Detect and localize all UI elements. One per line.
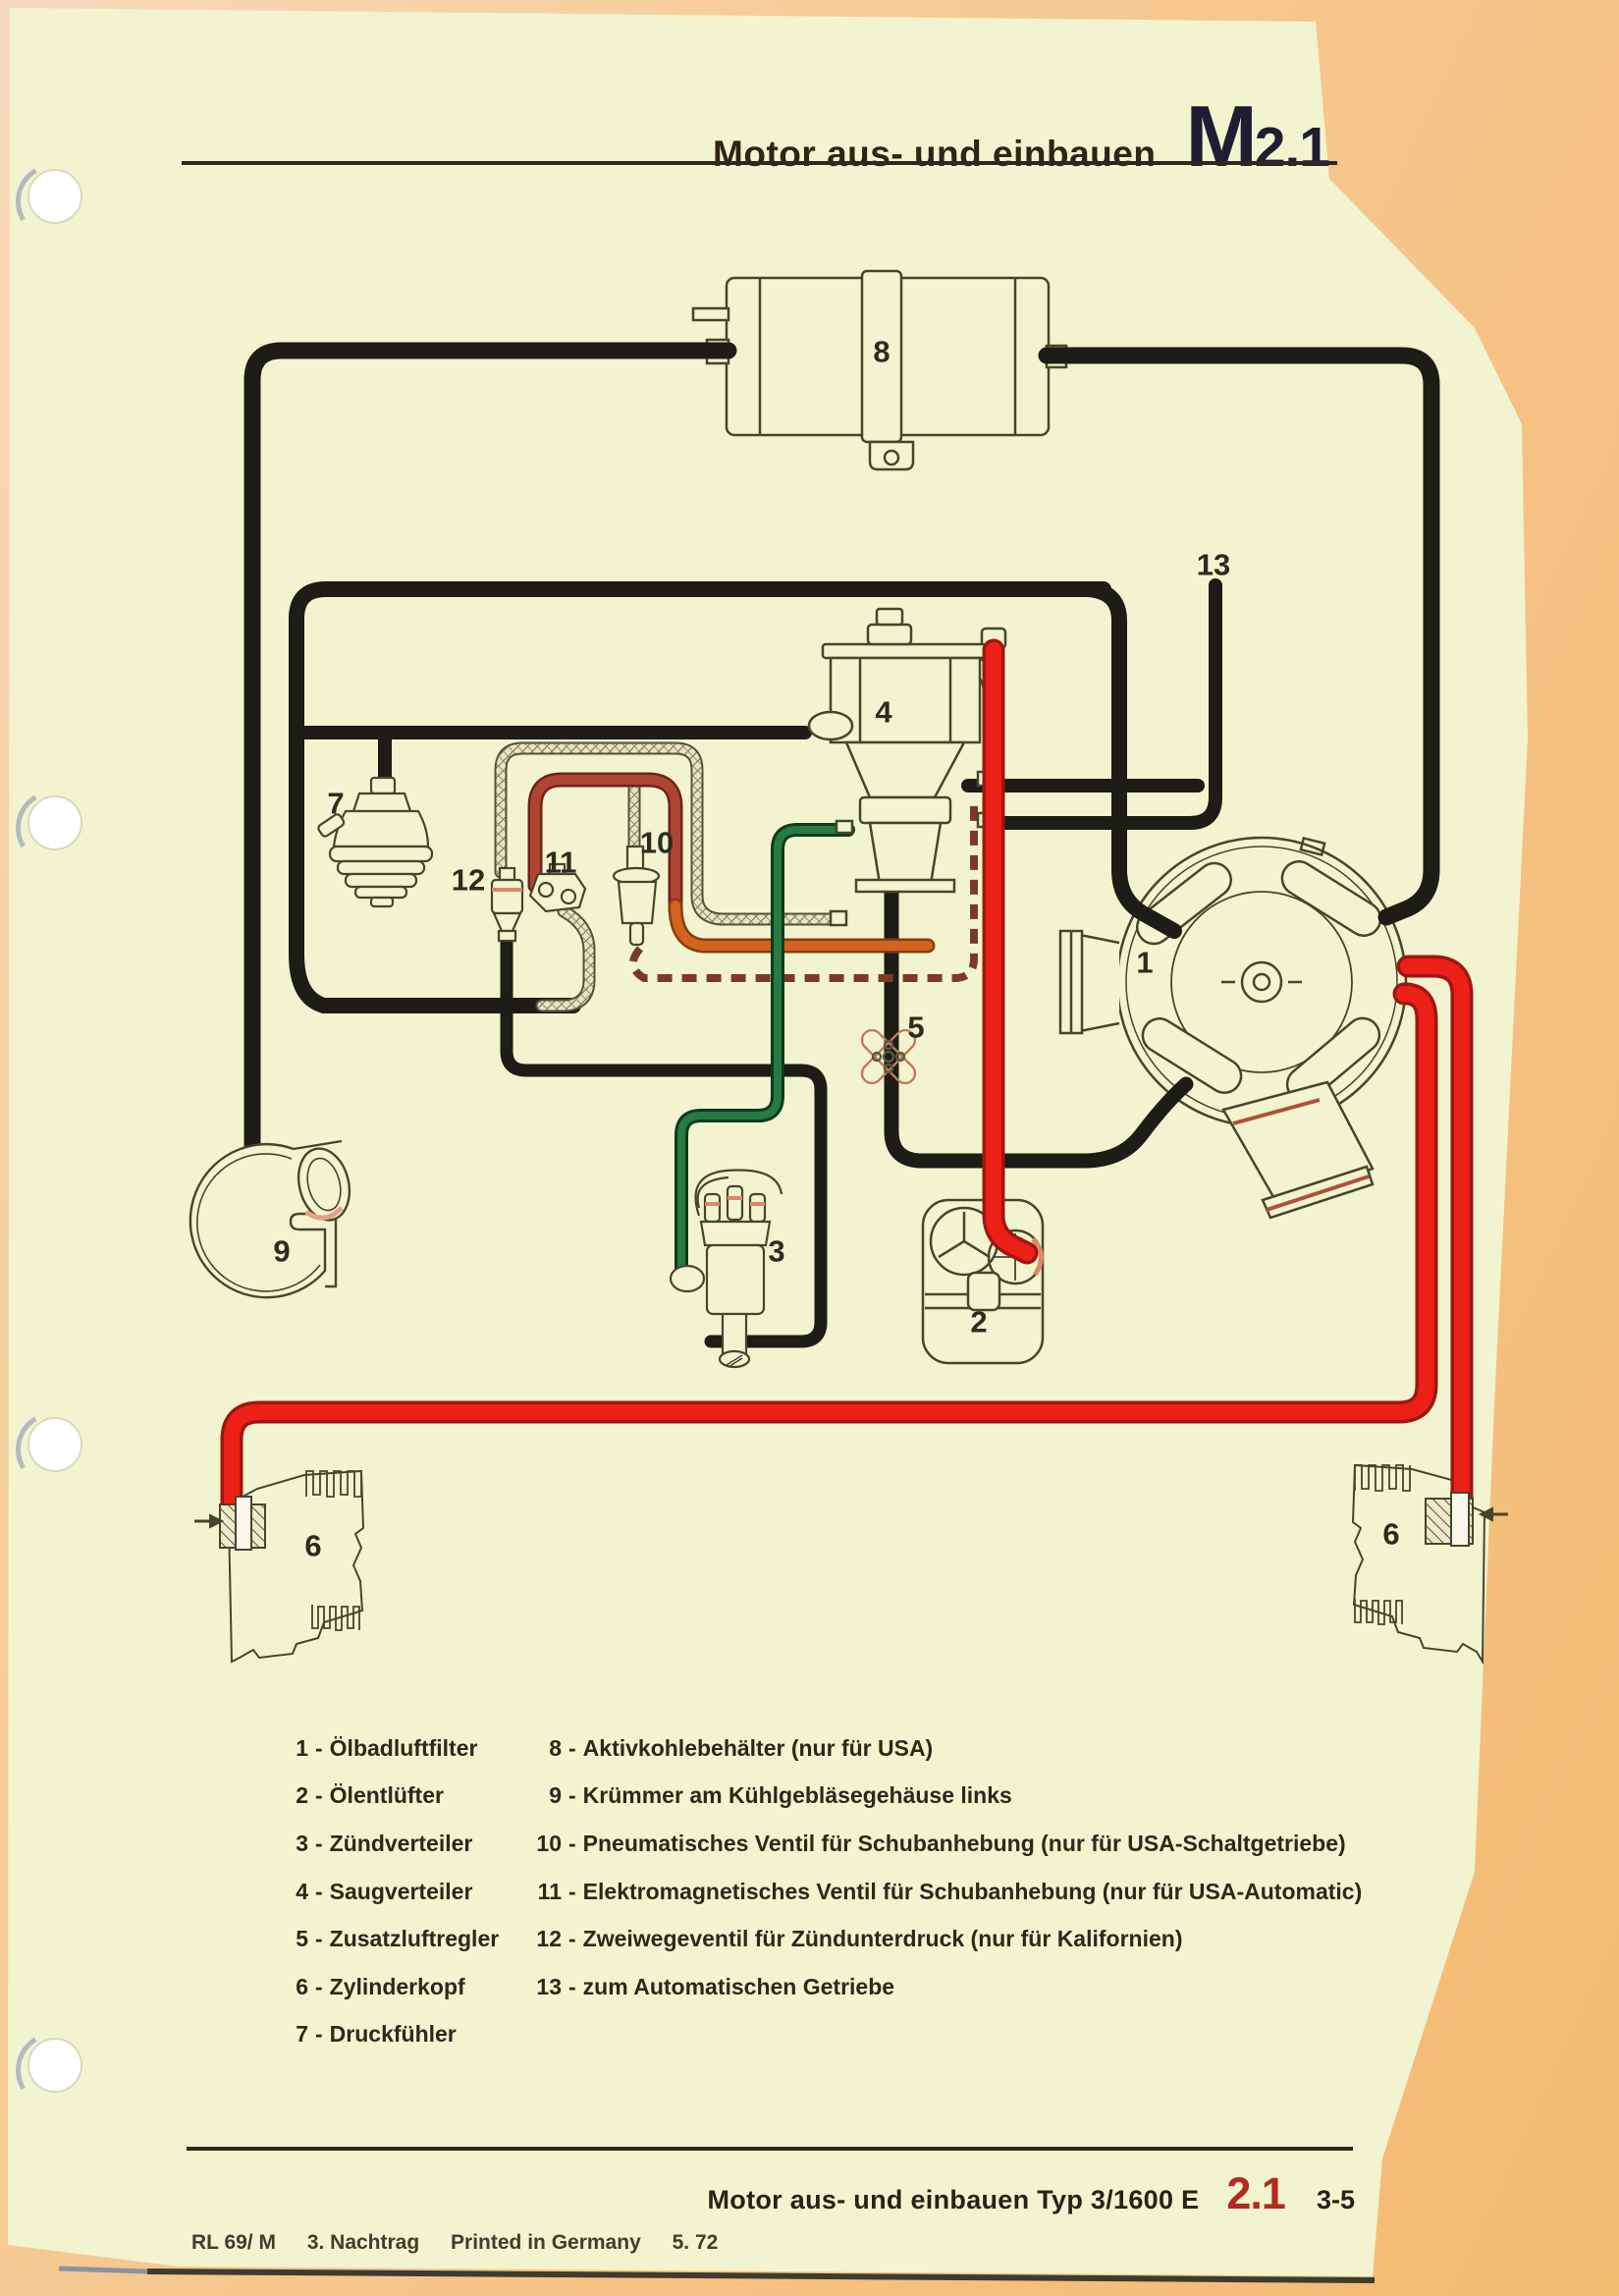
imprint-printed: Printed in Germany	[451, 2231, 641, 2254]
legend-number: 8	[534, 1735, 562, 1762]
footer-page-number: 3-5	[1317, 2185, 1355, 2215]
legend-label: zum Automatischen Getriebe	[583, 1974, 894, 2000]
diagram-callout-12: 12	[452, 865, 485, 896]
legend-row: 11 - Elektromagnetisches Ventil für Schu…	[534, 1868, 1362, 1916]
legend-dash: -	[568, 1735, 576, 1762]
legend-label: Zylinderkopf	[330, 1974, 465, 2000]
diagram-callout-1: 1	[1136, 948, 1153, 978]
imprint-date: 5. 72	[673, 2231, 719, 2254]
diagram-callout-10: 10	[640, 828, 674, 858]
footer-section-number: 2.1	[1226, 2168, 1285, 2219]
charcoal-canister-art	[693, 271, 1066, 469]
legend-dash: -	[568, 1831, 576, 1857]
page-footer: Motor aus- und einbauen Typ 3/1600 E 2.1…	[884, 2168, 1355, 2219]
legend-label: Elektromagnetisches Ventil für Schubanhe…	[583, 1879, 1363, 1905]
diagram-callout-3: 3	[768, 1236, 784, 1267]
legend-label: Aktivkohlebehälter (nur für USA)	[583, 1735, 934, 1762]
header-rule	[182, 161, 1337, 165]
legend-dash: -	[315, 1879, 323, 1905]
legend-dash: -	[315, 1926, 323, 1952]
legend-number: 7	[295, 2021, 308, 2048]
legend-dash: -	[315, 1831, 323, 1857]
diagram-callout-5: 5	[907, 1012, 924, 1043]
diagram-callout-8: 8	[873, 337, 890, 367]
diagram-callout-11: 11	[545, 847, 577, 878]
legend-row: 9 - Krümmer am Kühlgebläsegehäuse links	[534, 1773, 1362, 1821]
imprint-line: RL 69/ M 3. Nachtrag Printed in Germany …	[191, 2231, 743, 2255]
imprint-supplement: 3. Nachtrag	[307, 2231, 419, 2254]
diagram-callout-4: 4	[875, 697, 891, 728]
legend-dash: -	[315, 1782, 323, 1809]
legend-number: 6	[295, 1974, 308, 2000]
imprint-ref: RL 69/ M	[191, 2231, 276, 2254]
diagram-callout-6: 6	[304, 1531, 321, 1561]
legend-dash: -	[315, 1974, 323, 2000]
legend-dash: -	[568, 1926, 576, 1952]
legend-label: Krümmer am Kühlgebläsegehäuse links	[583, 1782, 1012, 1809]
legend-label: Druckfühler	[330, 2021, 457, 2048]
diagram-callout-6: 6	[1382, 1519, 1399, 1550]
legend-number: 10	[534, 1831, 562, 1857]
legend-dash: -	[568, 1782, 576, 1809]
legend-number: 3	[295, 1831, 308, 1857]
legend-column-1: 1 - Ölbadluftfilter 2 - Ölentlüfter 3 - …	[295, 1724, 499, 2058]
legend-number: 9	[534, 1782, 562, 1809]
head-fittings	[194, 1493, 1508, 1550]
pneumatic-valve-art	[614, 847, 659, 945]
legend-dash: -	[568, 1974, 576, 2000]
legend-row: 10 - Pneumatisches Ventil für Schubanheb…	[534, 1820, 1362, 1868]
legend-label: Ölentlüfter	[330, 1782, 444, 1809]
page-header: Motor aus- und einbauenM2.1	[628, 86, 1329, 187]
diagram-callout-9: 9	[273, 1236, 290, 1267]
diagram-callout-7: 7	[327, 789, 344, 819]
legend-dash: -	[568, 1879, 576, 1905]
legend-number: 13	[534, 1974, 562, 2000]
legend-label: Zusatzluftregler	[330, 1926, 500, 1952]
legend-row: 12 - Zweiwegeventil für Zündunterdruck (…	[534, 1915, 1362, 1963]
legend-row: 6 - Zylinderkopf	[295, 1963, 499, 2011]
header-section-number: 2.1	[1255, 116, 1329, 179]
legend-dash: -	[315, 1735, 323, 1762]
diagram-callout-13: 13	[1197, 550, 1230, 580]
legend-row: 13 - zum Automatischen Getriebe	[534, 1963, 1362, 2011]
legend-number: 2	[295, 1782, 308, 1809]
fan-housing-elbow-art	[190, 1141, 356, 1297]
legend-label: Saugverteiler	[330, 1879, 473, 1905]
footer-title: Motor aus- und einbauen Typ 3/1600 E	[708, 2185, 1200, 2215]
legend-number: 5	[295, 1926, 308, 1952]
legend-row: 7 - Druckfühler	[295, 2011, 499, 2059]
header-section-letter: M	[1185, 87, 1254, 185]
legend-number: 4	[295, 1879, 308, 1905]
legend-label: Zündverteiler	[330, 1831, 473, 1857]
legend-label: Ölbadluftfilter	[330, 1735, 478, 1762]
intake-distributor-art	[809, 609, 1005, 925]
legend-column-2: 8 - Aktivkohlebehälter (nur für USA) 9 -…	[534, 1724, 1362, 2011]
header-title: Motor aus- und einbauen	[713, 134, 1156, 174]
legend-number: 11	[534, 1879, 562, 1905]
two-way-valve-art	[492, 868, 522, 941]
footer-rule	[187, 2147, 1353, 2151]
legend-number: 12	[534, 1926, 562, 1952]
legend-row: 2 - Ölentlüfter	[295, 1773, 499, 1821]
page-bottom-edge	[59, 2269, 1375, 2280]
legend-number: 1	[295, 1735, 308, 1762]
legend-row: 8 - Aktivkohlebehälter (nur für USA)	[534, 1724, 1362, 1773]
legend-row: 3 - Zündverteiler	[295, 1820, 499, 1868]
legend-row: 5 - Zusatzluftregler	[295, 1915, 499, 1963]
legend-dash: -	[315, 2021, 323, 2048]
legend-row: 1 - Ölbadluftfilter	[295, 1724, 499, 1773]
legend-label: Pneumatisches Ventil für Schubanhebung (…	[583, 1831, 1346, 1857]
diagram-callout-2: 2	[970, 1307, 987, 1338]
legend-label: Zweiwegeventil für Zündunterdruck (nur f…	[583, 1926, 1183, 1952]
legend-row: 4 - Saugverteiler	[295, 1868, 499, 1916]
